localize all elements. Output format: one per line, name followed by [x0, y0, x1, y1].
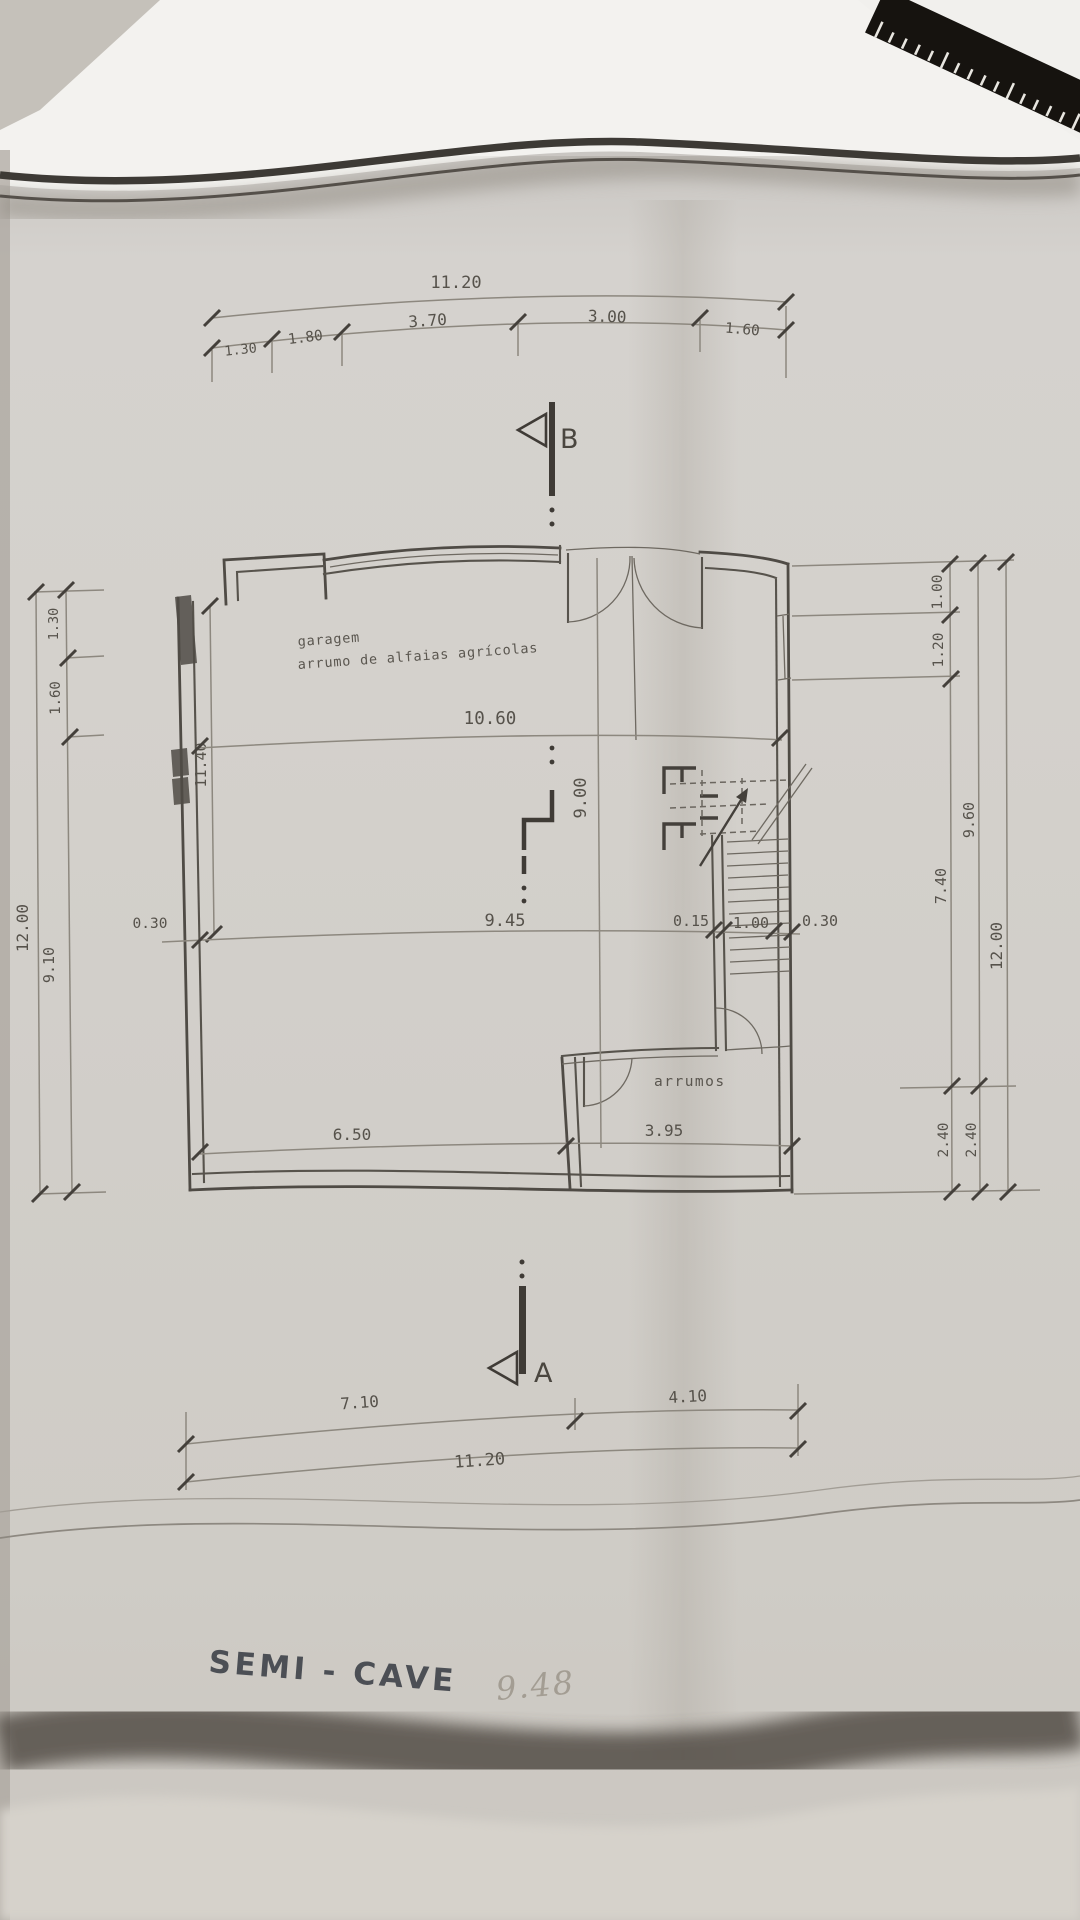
dim-right-seg3: 7.40 [932, 868, 950, 904]
section-label-a: A [534, 1358, 553, 1389]
dim-left-overall: 12.00 [13, 904, 32, 952]
section-label-b: B [560, 424, 579, 455]
dim-right-seg2: 1.20 [931, 633, 947, 668]
dim-stair-wall: 0.15 [673, 912, 709, 930]
dim-width-upper: 10.60 [464, 709, 517, 729]
dim-stair-width: 1.00 [733, 914, 769, 932]
handwritten-note: 9.48 [494, 1663, 576, 1708]
dim-right-overall: 12.00 [987, 922, 1006, 970]
dim-left-seg2: 1.60 [48, 681, 64, 715]
wall-vent-block [172, 777, 190, 805]
paper-left-edge [0, 150, 10, 1920]
dim-right-lower2: 2.40 [964, 1123, 980, 1158]
dim-left-seg1: 1.30 [46, 608, 62, 641]
dim-right-lower1: 2.40 [936, 1123, 952, 1158]
dim-top-seg4: 3.00 [588, 306, 627, 326]
dim-bottom-overall: 11.20 [453, 1449, 505, 1473]
dim-right-subtotal: 9.60 [960, 802, 978, 838]
drawing-svg: B A garagem arrumo de alfaias agrícolas … [0, 0, 1080, 1920]
dim-bottom-seg1: 7.10 [340, 1392, 380, 1414]
wall-vent-block [171, 748, 189, 777]
photo-of-floor-plan: B A garagem arrumo de alfaias agrícolas … [0, 0, 1080, 1920]
dim-right-seg1: 1.00 [930, 575, 946, 610]
storage-label: arrumos [654, 1074, 726, 1090]
dim-width-lower-left: 6.50 [333, 1125, 372, 1144]
dim-height-mid: 9.00 [571, 778, 591, 819]
dim-top-seg1: 1.30 [224, 340, 258, 359]
dim-wall-right: 0.30 [802, 912, 838, 930]
dim-left-seg3: 9.10 [40, 947, 58, 983]
dim-bottom-seg2: 4.10 [668, 1386, 707, 1407]
dim-top-seg5: 1.60 [724, 321, 760, 340]
dim-top-seg3: 3.70 [408, 310, 448, 332]
dim-wall-left: 0.30 [133, 916, 168, 932]
dim-width-lower-right: 3.95 [645, 1121, 684, 1140]
dim-width-mid: 9.45 [485, 911, 526, 931]
dim-top-overall: 11.20 [430, 273, 481, 293]
